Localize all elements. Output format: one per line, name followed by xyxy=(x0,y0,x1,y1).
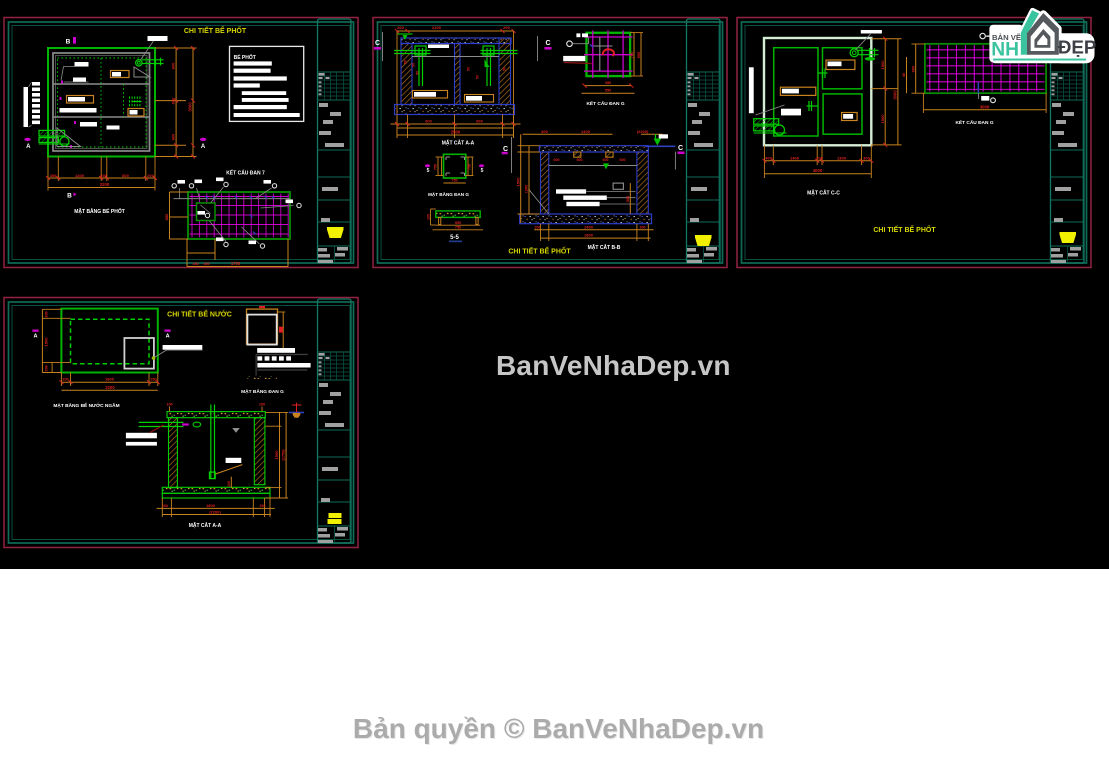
svg-text:750: 750 xyxy=(629,51,634,58)
svg-text:MẶT CẮT B-B: MẶT CẮT B-B xyxy=(588,243,621,251)
svg-text:350: 350 xyxy=(605,81,611,85)
svg-text:100: 100 xyxy=(259,402,265,406)
svg-text:5: 5 xyxy=(427,168,430,174)
svg-text:100: 100 xyxy=(227,481,231,487)
svg-text:500: 500 xyxy=(626,196,630,202)
svg-text:CHI TIẾT BỂ NƯỚC: CHI TIẾT BỂ NƯỚC xyxy=(167,309,232,319)
svg-text:550: 550 xyxy=(455,221,461,225)
svg-text:(2200): (2200) xyxy=(637,129,649,134)
svg-text:(2200): (2200) xyxy=(209,509,221,514)
svg-text:600: 600 xyxy=(577,158,583,162)
svg-text:200: 200 xyxy=(816,155,823,160)
svg-text:C: C xyxy=(375,40,380,47)
svg-text:800: 800 xyxy=(171,62,176,69)
svg-text:A: A xyxy=(34,334,38,340)
svg-text:900: 900 xyxy=(636,51,641,58)
svg-text:1500: 1500 xyxy=(880,114,885,124)
svg-text:C: C xyxy=(545,40,550,47)
svg-text:900: 900 xyxy=(910,65,915,72)
svg-text:2200: 2200 xyxy=(105,385,115,390)
svg-text:A: A xyxy=(26,144,31,150)
svg-text:(1750): (1750) xyxy=(282,449,286,461)
svg-text:50: 50 xyxy=(412,63,416,67)
svg-text:1700: 1700 xyxy=(231,261,241,266)
svg-text:1500: 1500 xyxy=(516,177,521,187)
svg-text:MẶT BẰNG BỂ NƯỚC NGẦM: MẶT BẰNG BỂ NƯỚC NGẦM xyxy=(53,401,119,409)
svg-text:40: 40 xyxy=(902,73,906,77)
svg-text:1400: 1400 xyxy=(581,129,591,134)
svg-text:5: 5 xyxy=(481,168,484,174)
svg-text:200: 200 xyxy=(62,378,68,382)
svg-text:CHI TIẾT BỂ PHỐT: CHI TIẾT BỂ PHỐT xyxy=(873,224,936,234)
svg-text:MẶT BẰNG BỂ PHỐT: MẶT BẰNG BỂ PHỐT xyxy=(74,207,125,215)
svg-text:A: A xyxy=(166,334,170,340)
svg-text:600: 600 xyxy=(603,158,609,162)
svg-text:850: 850 xyxy=(164,213,169,220)
svg-text:750: 750 xyxy=(451,179,457,183)
svg-text:2500: 2500 xyxy=(451,130,461,135)
svg-text:200: 200 xyxy=(535,225,541,229)
svg-text:800: 800 xyxy=(171,133,176,140)
svg-text:100: 100 xyxy=(166,402,172,406)
svg-text:4000: 4000 xyxy=(813,168,823,173)
svg-text:ĐẸP: ĐẸP xyxy=(1058,36,1097,57)
svg-text:1500: 1500 xyxy=(880,60,885,70)
svg-text:400: 400 xyxy=(541,129,548,134)
svg-text:900: 900 xyxy=(476,119,483,124)
svg-text:CHI TIẾT BỂ PHỐT: CHI TIẾT BỂ PHỐT xyxy=(184,25,247,35)
svg-text:A: A xyxy=(201,144,206,150)
svg-text:200: 200 xyxy=(397,25,404,30)
svg-text:800: 800 xyxy=(171,97,176,104)
svg-text:50: 50 xyxy=(503,67,507,71)
svg-text:MẶT CẮT C-C: MẶT CẮT C-C xyxy=(807,189,840,197)
svg-text:600: 600 xyxy=(620,158,626,162)
svg-text:1500: 1500 xyxy=(44,337,49,347)
svg-text:300: 300 xyxy=(203,262,209,266)
svg-text:3000: 3000 xyxy=(893,90,898,100)
svg-text:750: 750 xyxy=(468,164,472,170)
svg-text:750: 750 xyxy=(434,164,438,170)
svg-text:300: 300 xyxy=(45,365,49,371)
svg-text:2200: 2200 xyxy=(100,182,110,187)
svg-text:1300: 1300 xyxy=(837,155,847,160)
svg-text:200: 200 xyxy=(150,378,156,382)
svg-text:2100: 2100 xyxy=(432,25,442,30)
svg-text:1500: 1500 xyxy=(274,450,279,460)
svg-text:400: 400 xyxy=(50,173,57,178)
svg-text:1400: 1400 xyxy=(584,224,594,229)
svg-text:50: 50 xyxy=(404,60,408,64)
svg-text:1800: 1800 xyxy=(584,233,594,238)
svg-text:200: 200 xyxy=(162,504,168,508)
svg-text:300: 300 xyxy=(45,311,49,317)
svg-text:NH: NH xyxy=(991,39,1019,60)
svg-text:600: 600 xyxy=(554,158,560,162)
svg-text:CHI TIẾT BỂ PHỐT: CHI TIẾT BỂ PHỐT xyxy=(508,246,571,256)
svg-text:1400: 1400 xyxy=(75,173,85,178)
svg-text:KẾT CẤU ĐAN G: KẾT CẤU ĐAN G xyxy=(955,119,993,126)
svg-text:1200: 1200 xyxy=(525,185,529,193)
svg-text:900: 900 xyxy=(425,119,432,124)
svg-text:MẶT CẮT A-A: MẶT CẮT A-A xyxy=(189,521,222,529)
svg-text:1800: 1800 xyxy=(105,377,115,382)
svg-text:50: 50 xyxy=(476,75,480,79)
svg-text:MẶT CẮT A-A: MẶT CẮT A-A xyxy=(442,139,475,147)
svg-text:3000: 3000 xyxy=(188,102,193,112)
svg-text:200: 200 xyxy=(503,25,510,30)
svg-text:200: 200 xyxy=(100,173,107,178)
svg-text:200: 200 xyxy=(640,225,646,229)
svg-text:C: C xyxy=(678,145,683,152)
svg-text:KẾT CẤU ĐAN G: KẾT CẤU ĐAN G xyxy=(586,100,624,107)
svg-text:B: B xyxy=(66,39,71,46)
svg-text:KẾT CẤU ĐAN 7: KẾT CẤU ĐAN 7 xyxy=(226,170,265,177)
svg-text:750: 750 xyxy=(455,226,461,230)
svg-text:50: 50 xyxy=(467,67,471,71)
svg-text:150: 150 xyxy=(192,262,198,266)
svg-text:3000: 3000 xyxy=(980,104,990,109)
svg-text:1400: 1400 xyxy=(790,155,800,160)
svg-text:MẶT BẰNG ĐAN G: MẶT BẰNG ĐAN G xyxy=(428,190,469,197)
svg-text:5-5: 5-5 xyxy=(450,235,459,241)
svg-text:800: 800 xyxy=(122,173,129,178)
svg-text:550: 550 xyxy=(605,89,611,93)
svg-text:BỂ PHỐT: BỂ PHỐT xyxy=(234,54,256,61)
svg-text:MẶT BẰNG ĐAN G: MẶT BẰNG ĐAN G xyxy=(241,387,284,395)
svg-text:1800: 1800 xyxy=(206,503,216,508)
svg-text:200: 200 xyxy=(260,504,266,508)
svg-text:B: B xyxy=(67,192,72,199)
svg-text:100: 100 xyxy=(427,214,431,220)
svg-text:50: 50 xyxy=(416,71,420,75)
